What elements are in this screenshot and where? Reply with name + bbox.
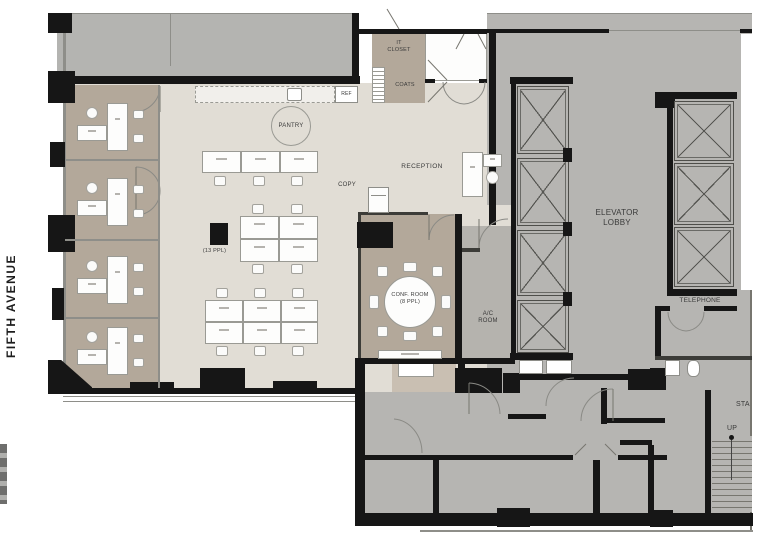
office-desk-return (77, 125, 107, 141)
column-bottomwall-2 (200, 368, 245, 393)
it-closet-label: IT CLOSET (379, 40, 419, 54)
door-office-1 (133, 85, 161, 113)
office-desk (107, 178, 128, 226)
wall-top-jog (352, 13, 359, 83)
conf-chair (441, 295, 451, 309)
column-bottom-1 (497, 508, 530, 527)
conf-chair (369, 295, 379, 309)
workstation-desk (280, 151, 318, 173)
facade-column-2 (48, 71, 75, 103)
bottom-edge-line (420, 530, 753, 532)
pantry-sink (287, 88, 302, 101)
restroom-sink (665, 360, 680, 376)
lower-tan-cabinet (398, 363, 434, 377)
column-open-area (210, 223, 228, 245)
workstation-desk (240, 239, 279, 262)
conf-chair (403, 331, 417, 341)
column-bottomwall-3 (273, 381, 317, 393)
street-label: FIFTH AVENUE (4, 213, 18, 358)
office-partition-1 (65, 159, 160, 161)
restroom-toilet (687, 360, 700, 377)
column-conf-corner (357, 222, 393, 248)
wall-top-main (50, 76, 360, 84)
door-it-top (386, 8, 400, 30)
office-desk-return (77, 349, 107, 365)
column-lc (503, 373, 520, 393)
chair (292, 346, 304, 356)
elevator-lobby-label: ELEVATOR LOBBY (587, 208, 647, 228)
floor-plan: REF PANTRY COPY (13 PPL) (0, 0, 764, 542)
workstation-desk (243, 322, 281, 344)
wall-lc-9 (648, 445, 654, 513)
workstation-desk (279, 239, 318, 262)
chair (253, 176, 265, 186)
open-capacity-label: (13 PPL) (192, 248, 237, 255)
column-bottom-2 (650, 510, 673, 527)
wall-tel-left (655, 306, 661, 360)
reception-label: RECEPTION (394, 163, 450, 170)
workstation-desk (240, 216, 279, 239)
office-chair (86, 260, 98, 272)
wall-lc-11 (593, 460, 600, 513)
core-top-seam (607, 30, 752, 31)
chair (216, 288, 228, 298)
wall-lobby-top (487, 29, 609, 33)
edge-graphic-fragment (0, 444, 7, 504)
bank-right-top-wall (667, 92, 737, 99)
elevator-shaft-l1 (517, 86, 569, 154)
wall-lc-12 (508, 414, 546, 419)
conf-room-label: CONF. ROOM (8 PPL) (380, 292, 440, 306)
office-chair (86, 331, 98, 343)
bank-left-nub-1 (563, 148, 572, 162)
workstation-desk (205, 322, 243, 344)
chair (252, 264, 264, 274)
facade-column-4 (48, 215, 75, 252)
door-lc-b (545, 377, 575, 407)
chair (254, 346, 266, 356)
guest-chair (133, 209, 144, 218)
facade-column-1 (48, 13, 72, 33)
office-front-wall (158, 85, 160, 388)
bank-right-bottom-wall (667, 289, 737, 296)
reception-desk-return (483, 154, 502, 167)
wall-topright-stub (740, 29, 752, 33)
bank-left-left-wall (511, 80, 516, 360)
column-restroom (628, 369, 652, 390)
guest-chair (133, 334, 144, 343)
conf-chair (377, 326, 388, 337)
conf-chair (432, 326, 443, 337)
door-ac-room (478, 218, 509, 249)
conf-chair (403, 262, 417, 272)
office-chair (86, 182, 98, 194)
it-shelving (372, 67, 385, 103)
sidewalk-line-2 (63, 401, 360, 402)
chair (216, 346, 228, 356)
chair (252, 204, 264, 214)
wall-conf-ac (455, 214, 462, 360)
wall-tel-top-r (704, 306, 737, 311)
right-exterior-notch (741, 34, 752, 290)
door-lc-chevrons (573, 442, 618, 456)
office-desk-return (77, 200, 107, 216)
restroom-counter (519, 360, 543, 374)
wall-stair-divider (705, 390, 711, 513)
wall-bottom-main (355, 513, 753, 526)
reception-chair (486, 171, 499, 184)
column-lc-2 (650, 368, 666, 390)
telephone-label: TELEPHONE (668, 297, 732, 304)
workstation-desk (202, 151, 241, 173)
elevator-shaft-l4 (517, 300, 569, 353)
guest-chair (133, 358, 144, 367)
neighbor-space (57, 13, 353, 77)
ac-room-label: A/C ROOM (468, 311, 508, 325)
coats-label: COATS (385, 82, 425, 89)
conf-chair (377, 266, 388, 277)
elevator-shaft-r3 (674, 227, 734, 287)
workstation-desk (281, 322, 318, 344)
ref-label: REF (335, 91, 358, 98)
wall-lc-10 (433, 460, 439, 513)
copier-detail-line (371, 195, 386, 196)
restroom-counter-2 (546, 360, 572, 374)
pantry-label: PANTRY (266, 123, 316, 130)
bank-left-bottom-wall (510, 353, 573, 360)
bank-left-top-wall (510, 77, 573, 84)
bank-left-nub-2 (563, 222, 572, 236)
door-coats (425, 58, 451, 104)
sidewalk-line-1 (63, 396, 360, 397)
door-lc-c (580, 388, 614, 422)
conf-chair (432, 266, 443, 277)
chair (291, 204, 303, 214)
neighbor-partition-line (170, 14, 171, 66)
workstation-desk (243, 300, 281, 322)
chair (214, 176, 226, 186)
door-vestibule-double (455, 33, 487, 50)
office-desk-return (77, 278, 107, 294)
office-desk (107, 256, 128, 304)
guest-chair (133, 263, 144, 272)
workstation-desk (241, 151, 280, 173)
wall-lc-7 (618, 455, 667, 460)
chair (291, 264, 303, 274)
office-partition-3 (65, 317, 160, 319)
facade-column-3 (50, 142, 65, 167)
facade-column-5 (52, 288, 64, 320)
facade-glass-line (63, 13, 66, 389)
elevator-shaft-l3 (517, 230, 569, 296)
column-bottomwall-1 (130, 382, 174, 393)
guest-chair (133, 110, 144, 119)
elevator-shaft-r2 (674, 163, 734, 225)
reception-desk (462, 152, 483, 197)
door-telephone-double (666, 311, 706, 333)
office-chair (86, 107, 98, 119)
copy-label: COPY (330, 182, 364, 189)
office-desk (107, 103, 128, 151)
office-partition-2 (65, 239, 160, 241)
up-label: UP (724, 425, 740, 432)
workstation-desk (281, 300, 318, 322)
workstation-desk (205, 300, 243, 322)
elevator-shaft-r1 (674, 101, 734, 161)
stair-walkline (731, 440, 732, 480)
bank-left-nub-3 (563, 292, 572, 306)
staircase (712, 436, 752, 512)
stair-label: STA (736, 401, 762, 408)
guest-chair (133, 134, 144, 143)
copier (368, 187, 389, 213)
chair (254, 288, 266, 298)
elevator-shaft-l2 (517, 158, 569, 226)
door-lc-d (393, 418, 423, 454)
top-edge-line (57, 13, 353, 14)
wall-lc-6 (365, 455, 573, 460)
chair (291, 176, 303, 186)
door-conference (428, 214, 455, 241)
office-desk (107, 327, 128, 375)
workstation-desk (279, 216, 318, 239)
guest-chair (133, 287, 144, 296)
top-edge-line-right (487, 13, 752, 14)
bank-right-left-wall (667, 99, 673, 292)
pantry-counter (195, 86, 335, 103)
chair (292, 288, 304, 298)
guest-chair (133, 185, 144, 194)
door-lc-a (468, 382, 501, 415)
conf-credenza (378, 350, 442, 359)
wall-lowercore-left (355, 358, 365, 523)
wall-lobby-left (489, 33, 496, 225)
